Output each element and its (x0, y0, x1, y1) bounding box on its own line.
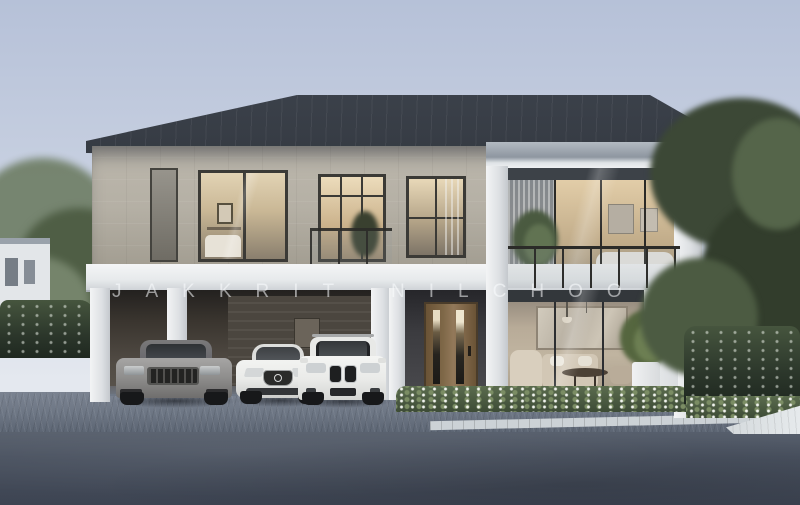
door-handle (468, 346, 471, 356)
sedan-grille (147, 367, 199, 385)
front-flower-hedge (396, 386, 692, 412)
bmw-intake (330, 388, 356, 396)
asphalt-road (0, 426, 800, 505)
door-transom-bar (321, 195, 383, 197)
sheer-curtain (445, 179, 463, 255)
corner-slit-window (150, 168, 178, 262)
bmw-kidney-grille (344, 365, 357, 383)
left-hedge (0, 300, 94, 358)
right-hedge (684, 326, 800, 404)
juliet-railing (310, 228, 392, 264)
bmw-wheel (302, 392, 324, 405)
bmw-mirror (378, 358, 386, 363)
photographer-watermark: JAKKRIT NILCHOO (112, 281, 692, 305)
door-glass-slit (433, 310, 440, 384)
mercedes-wheel (240, 391, 262, 404)
carport-pillar (90, 288, 110, 402)
bmw-headlight (360, 363, 380, 373)
door-glass-slit (456, 310, 464, 384)
bmw-headlight (306, 363, 326, 373)
mercedes-star-emblem (274, 374, 282, 382)
sedan-wheel (120, 392, 144, 405)
bmw-wheel (362, 392, 384, 405)
glass-reflection (201, 173, 285, 259)
bmw-mirror (300, 358, 308, 363)
distant-window (5, 258, 18, 286)
master-bedroom-window (198, 170, 288, 262)
sedan-headlight (124, 366, 144, 375)
sedan-wheel (204, 392, 228, 405)
house-exterior-render: JAKKRIT NILCHOO (0, 0, 800, 505)
mercedes-headlight (244, 368, 264, 377)
sedan-headlight (200, 366, 220, 375)
upper-mid-window (406, 176, 466, 258)
distant-window (24, 260, 35, 284)
bmw-kidney-grille (329, 365, 342, 383)
